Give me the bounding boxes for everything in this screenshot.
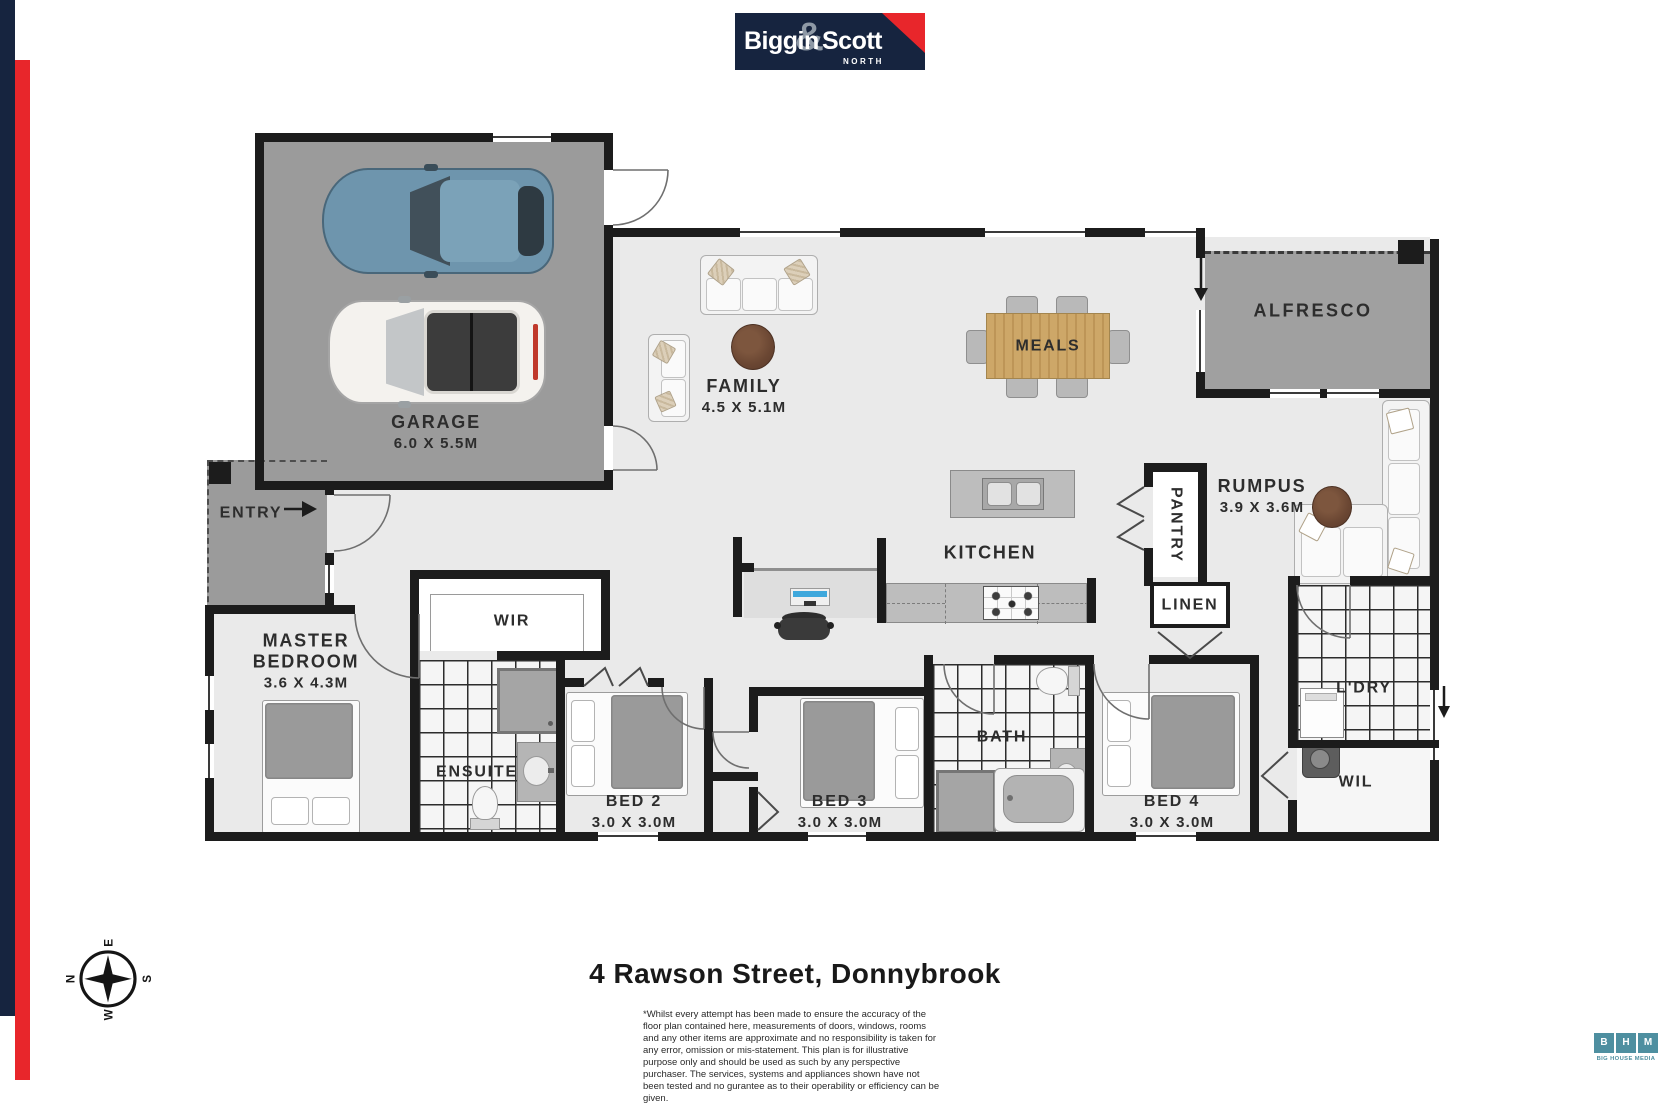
wall	[648, 678, 664, 687]
logo-name-a: Biggin	[744, 27, 819, 56]
porch-pillar	[209, 462, 231, 484]
wall	[749, 687, 758, 732]
label-rumpus: RUMPUS3.9 X 3.6M	[1218, 476, 1307, 518]
wall	[604, 228, 1205, 237]
dining-chair	[1006, 376, 1038, 398]
wall	[1430, 239, 1439, 690]
svg-text:W: W	[103, 1008, 116, 1020]
logo-name-b: Scott	[822, 27, 882, 56]
sink-bowl	[987, 482, 1012, 506]
wall	[205, 605, 214, 841]
bathtub	[994, 768, 1085, 832]
ensuite-vanity	[517, 742, 559, 802]
ensuite-toilet	[468, 786, 502, 832]
window	[205, 744, 214, 778]
office-chair	[778, 612, 830, 642]
label-bath: BATH	[977, 727, 1027, 748]
wall	[601, 570, 610, 660]
wall	[1288, 576, 1297, 740]
wall	[497, 651, 610, 660]
window	[808, 832, 866, 841]
wall	[556, 660, 565, 841]
label-bed2: BED 23.0 X 3.0M	[592, 791, 677, 833]
label-ensuite: ENSUITE	[436, 762, 518, 783]
window	[1196, 310, 1205, 372]
label-kitchen: KITCHEN	[944, 543, 1037, 564]
wall	[1250, 655, 1259, 841]
bath-shower	[936, 770, 996, 834]
wall	[733, 537, 742, 617]
bed2-bed	[566, 692, 688, 796]
window	[1145, 228, 1197, 237]
label-meals: MEALS	[1016, 336, 1081, 357]
wall	[255, 133, 264, 490]
bhm-caption: BIG HOUSE MEDIA	[1594, 1056, 1658, 1062]
wall	[704, 678, 713, 841]
rumpus-sofa	[1294, 400, 1430, 584]
wall	[713, 772, 758, 781]
wall	[1288, 740, 1439, 748]
logo-region: NORTH	[843, 57, 884, 66]
wall	[1087, 578, 1096, 623]
svg-text:S: S	[141, 975, 153, 983]
alfresco-corner-post	[1398, 240, 1424, 264]
wall	[1198, 463, 1207, 586]
svg-text:N: N	[65, 975, 78, 983]
wall	[1288, 800, 1297, 841]
label-bed3: BED 33.0 X 3.0M	[798, 791, 883, 833]
wall	[205, 605, 355, 614]
label-family: FAMILY4.5 X 5.1M	[702, 376, 787, 418]
wall	[604, 133, 613, 170]
label-wir: WIR	[494, 611, 531, 632]
label-garage: GARAGE6.0 X 5.5M	[391, 412, 481, 454]
wall	[325, 593, 334, 605]
bath-toilet	[1036, 664, 1082, 698]
wall	[325, 481, 334, 495]
disclaimer-text: *Whilst every attempt has been made to e…	[643, 1009, 943, 1105]
dining-chair	[1056, 376, 1088, 398]
sink-bowl	[1016, 482, 1041, 506]
window	[598, 832, 658, 841]
label-entry: ENTRY	[220, 503, 283, 524]
logo-red-triangle-icon	[882, 13, 925, 53]
address-title: 4 Rawson Street, Donnybrook	[345, 958, 1245, 990]
rumpus-side-table	[1312, 486, 1352, 528]
wall	[410, 570, 610, 579]
wall	[1085, 655, 1094, 841]
window	[985, 228, 1085, 237]
label-ldry: L'DRY	[1336, 678, 1392, 699]
car-sedan	[322, 168, 554, 274]
window	[740, 228, 840, 237]
window	[1327, 389, 1379, 398]
compass-icon: N E S W	[63, 930, 153, 1026]
family-coffee-table	[731, 324, 775, 370]
agency-logo: & Biggin Scott NORTH	[735, 13, 925, 70]
car-suv	[328, 300, 546, 404]
wall	[1196, 228, 1205, 258]
brand-strip-red	[15, 60, 30, 1080]
window	[1430, 690, 1439, 760]
label-wil: WIL	[1339, 772, 1374, 793]
wall	[1144, 548, 1153, 586]
monitor	[790, 588, 830, 606]
bhm-logo: B H M BIG HOUSE MEDIA	[1594, 1033, 1658, 1075]
label-pantry: PANTRY	[1166, 487, 1187, 563]
wall	[1350, 576, 1439, 585]
window	[1270, 389, 1320, 398]
window	[1136, 832, 1196, 841]
wall	[749, 787, 758, 841]
window	[325, 565, 334, 593]
label-linen: LINEN	[1162, 595, 1219, 616]
wall	[255, 481, 613, 490]
dining-chair	[966, 330, 988, 364]
laundry-exit-arrow-icon	[1438, 706, 1450, 718]
wall	[410, 570, 419, 841]
wall	[1430, 760, 1439, 841]
floorplan-page: { "brand": {"name_a": "Biggin", "amp": "…	[0, 0, 1659, 1080]
garage-rear-door-arc	[613, 170, 668, 225]
window	[205, 676, 214, 710]
wall	[1149, 655, 1250, 664]
label-bed4: BED 43.0 X 3.0M	[1130, 791, 1215, 833]
family-sofa	[700, 255, 818, 315]
wall	[556, 678, 584, 687]
wall	[877, 538, 886, 623]
wall	[749, 687, 933, 696]
wall	[255, 133, 613, 142]
bed4-bed	[1102, 692, 1240, 796]
wall	[1144, 463, 1153, 487]
master-bed	[262, 700, 360, 834]
family-armchair	[648, 334, 690, 422]
dining-chair	[1108, 330, 1130, 364]
wall	[325, 553, 334, 565]
window	[493, 133, 551, 142]
cooktop	[983, 586, 1039, 620]
wall	[924, 655, 933, 841]
svg-text:E: E	[103, 939, 116, 947]
wall	[742, 563, 754, 572]
label-master: MASTERBEDROOM3.6 X 4.3M	[253, 631, 360, 694]
floor-alfresco	[1205, 251, 1430, 392]
wall	[994, 655, 1085, 664]
wall	[604, 225, 613, 426]
ensuite-shower	[497, 668, 561, 734]
brand-strip-navy	[0, 0, 15, 1016]
label-alfresco: ALFRESCO	[1254, 301, 1373, 322]
